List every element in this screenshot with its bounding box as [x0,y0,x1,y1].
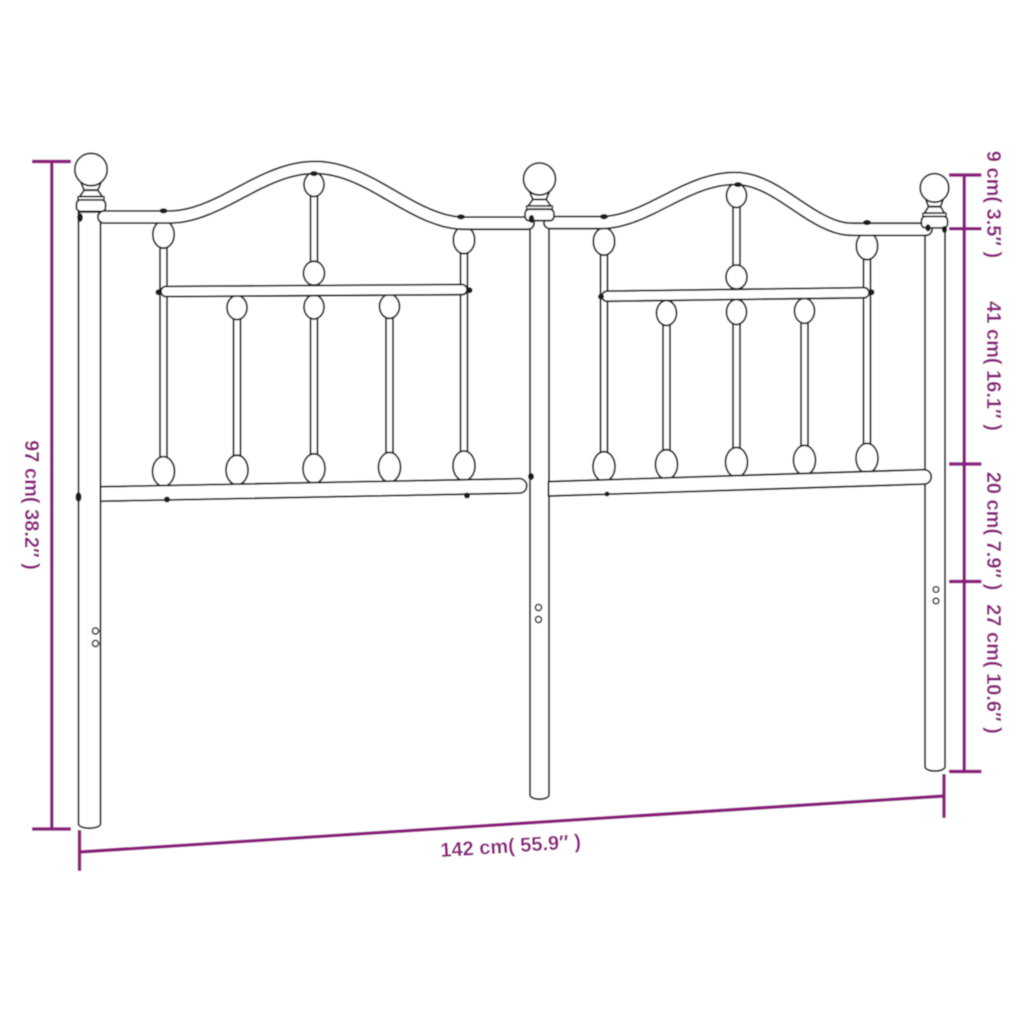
svg-text:20 cm( 7.9″ ): 20 cm( 7.9″ ) [982,472,1004,591]
svg-text:9 cm( 3.5″ ): 9 cm( 3.5″ ) [982,151,1004,258]
svg-text:27 cm( 10.6″ ): 27 cm( 10.6″ ) [982,604,1004,734]
svg-text:97 cm( 38.2″ ): 97 cm( 38.2″ ) [20,440,42,570]
svg-text:41 cm( 16.1″ ): 41 cm( 16.1″ ) [982,301,1004,431]
